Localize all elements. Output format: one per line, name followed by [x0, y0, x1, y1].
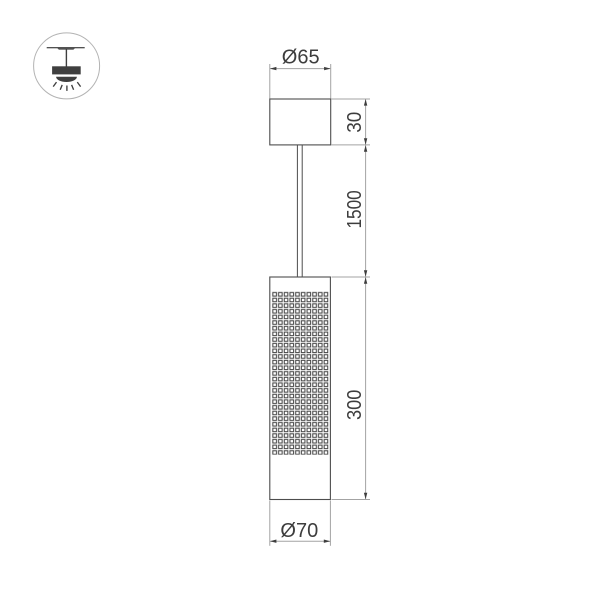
- svg-text:30: 30: [344, 112, 367, 133]
- svg-text:300: 300: [344, 390, 366, 420]
- svg-text:1500: 1500: [343, 190, 365, 228]
- svg-text:Ø65: Ø65: [282, 47, 320, 69]
- svg-text:Ø70: Ø70: [280, 520, 318, 542]
